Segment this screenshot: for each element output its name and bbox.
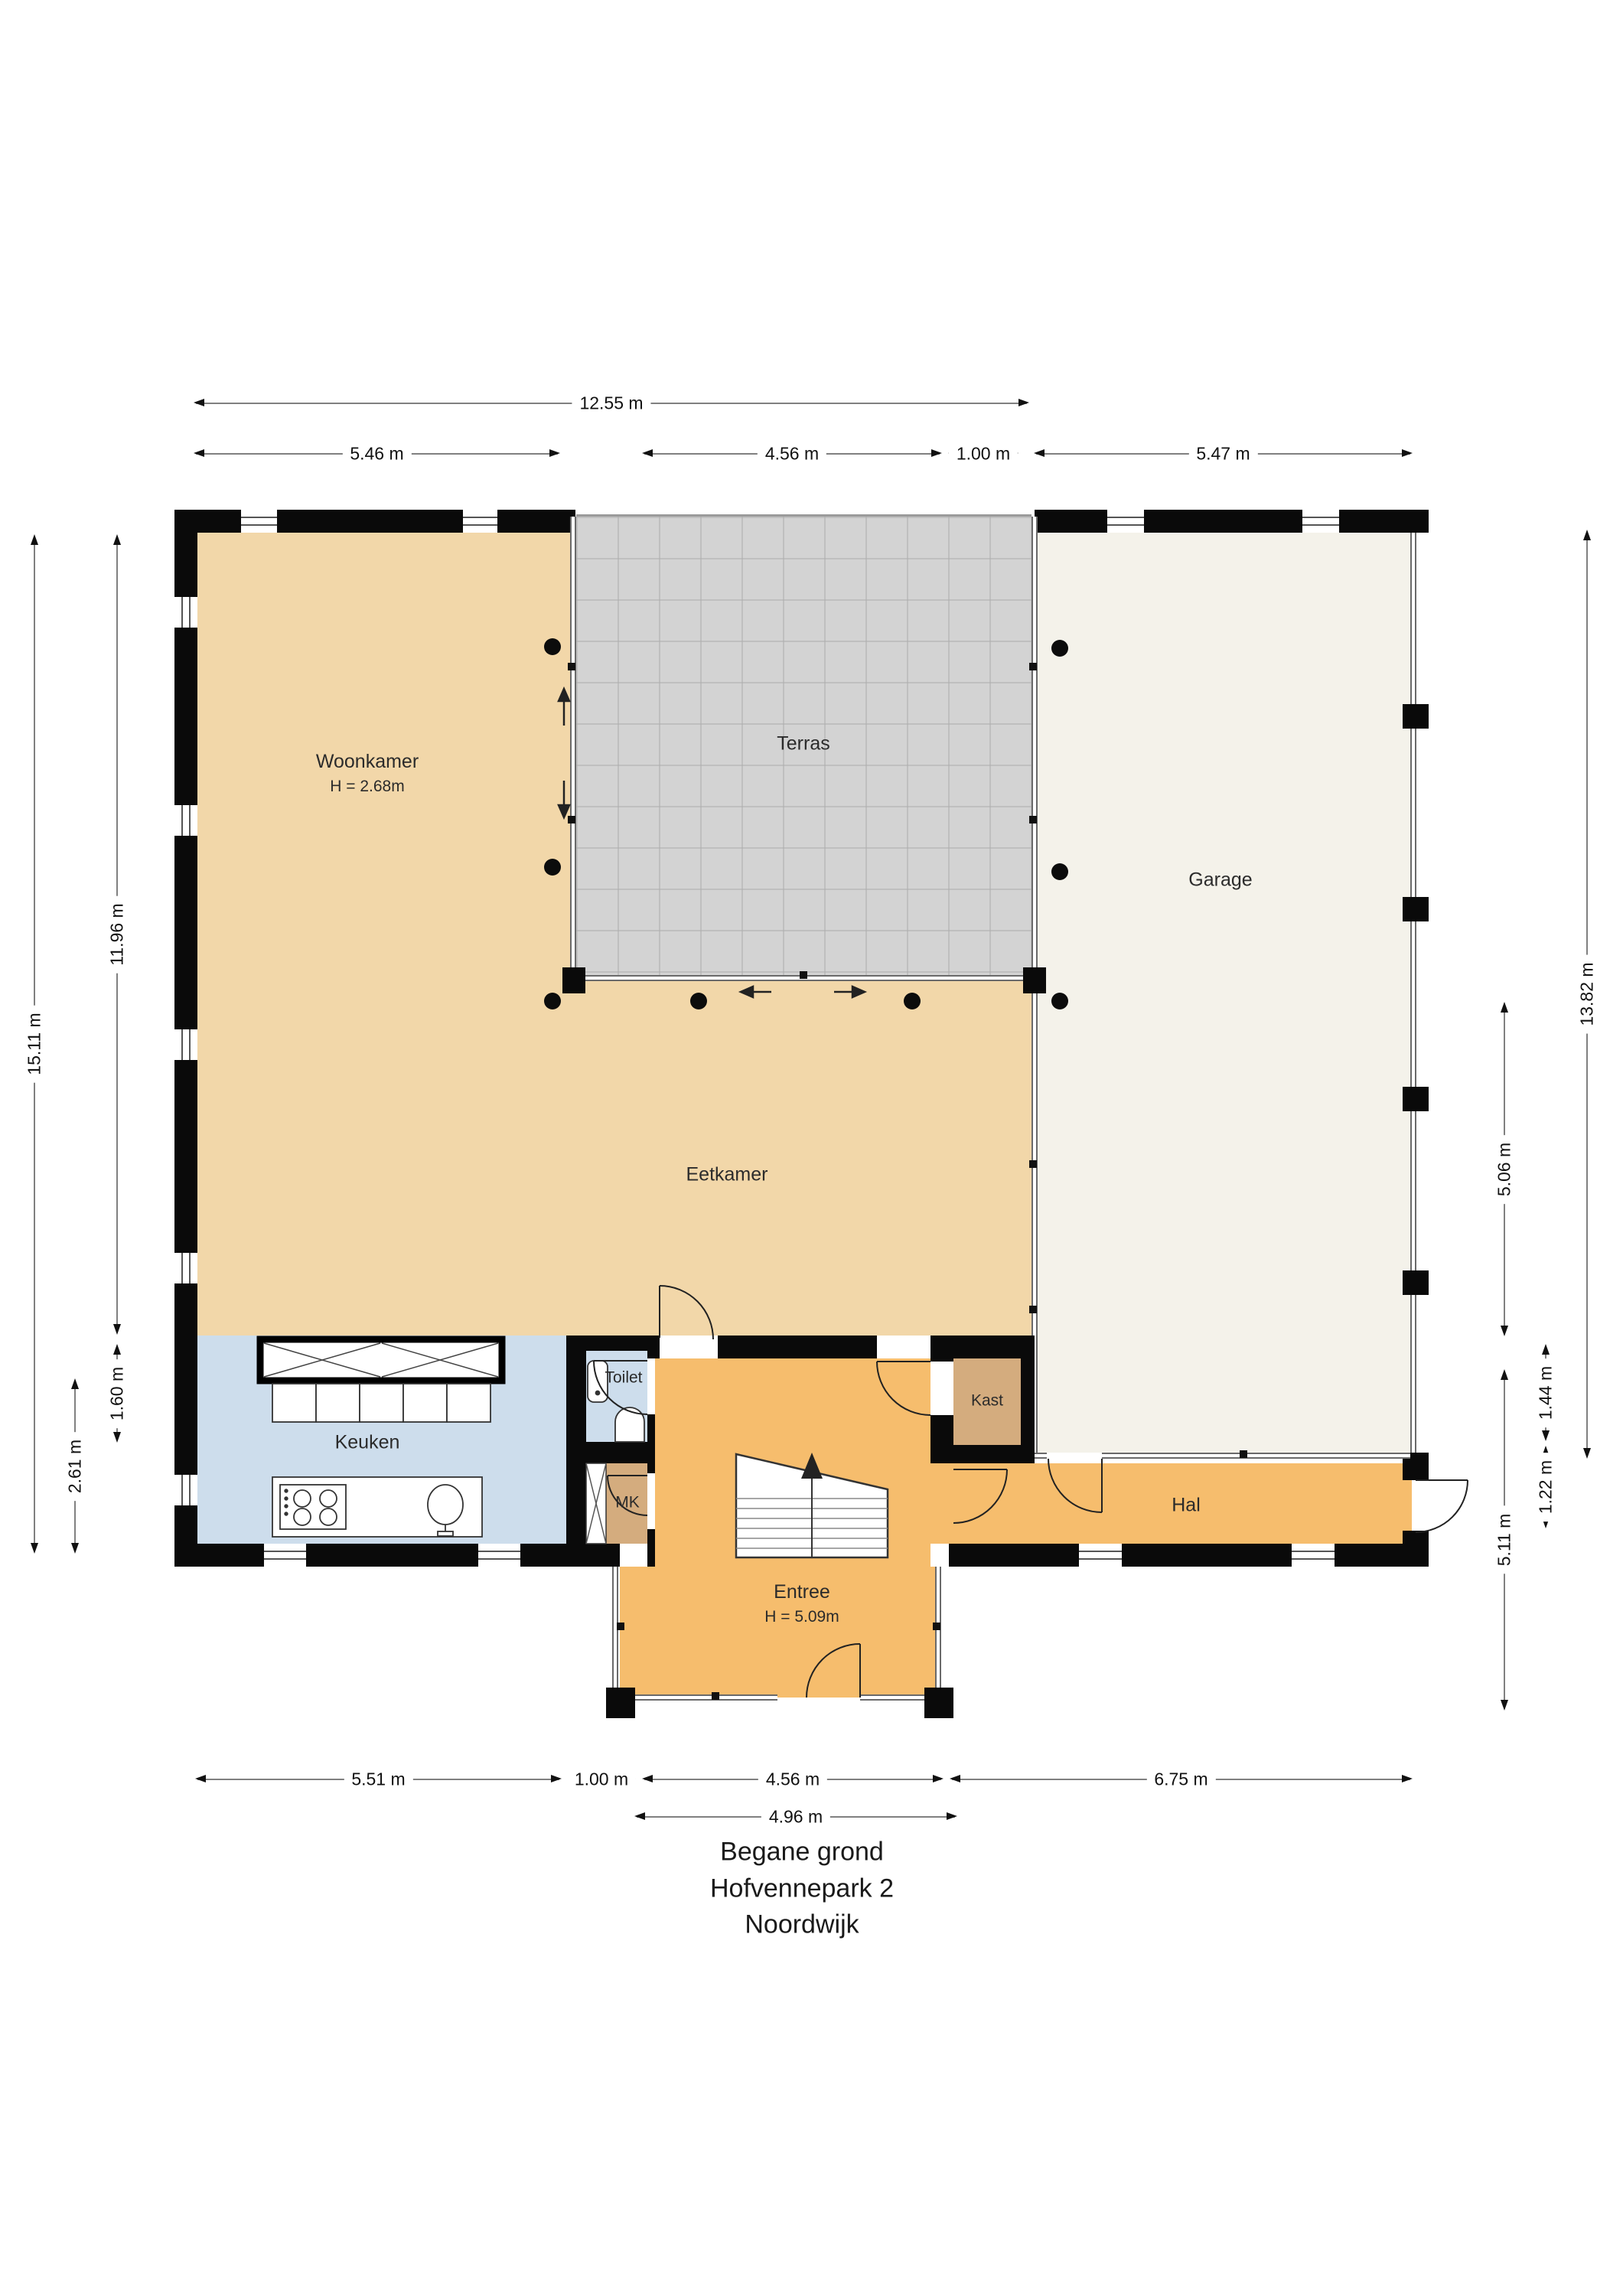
glass-wall-terras-left xyxy=(570,517,576,975)
wall-keuken-toilet xyxy=(566,1336,586,1544)
room-garage xyxy=(1038,533,1412,1453)
glass-wall-entree-front-a xyxy=(635,1694,777,1701)
wall-top-right xyxy=(1035,510,1429,533)
shaft-x xyxy=(586,1463,606,1544)
window-left-2 xyxy=(174,805,197,836)
glass-wall-hal-top-b xyxy=(1102,1453,1410,1459)
label-hal: Hal xyxy=(1172,1492,1201,1519)
wall-kast-bottom xyxy=(930,1445,1035,1463)
glass-wall-entree-front-b xyxy=(860,1694,926,1701)
window-left-4 xyxy=(174,1253,197,1283)
window-top-3 xyxy=(1107,510,1144,533)
label-woonkamer: Woonkamer H = 2.68m xyxy=(316,748,419,797)
terras-corner-post-left xyxy=(562,967,585,993)
room-eetkamer xyxy=(570,981,1031,1336)
door-hal-exterior xyxy=(1416,1480,1468,1532)
label-entree: Entree H = 5.09m xyxy=(764,1579,839,1628)
window-left-1 xyxy=(174,597,197,628)
wall-toilet-bottom xyxy=(586,1442,655,1463)
glass-wall-garage-right xyxy=(1410,533,1416,1453)
entree-corner-post-right xyxy=(924,1688,953,1718)
floor-plan: Woonkamer H = 2.68m Terras Garage Eetkam… xyxy=(0,0,1623,2296)
room-toilet xyxy=(586,1351,647,1442)
facade-pillar-2 xyxy=(1403,897,1429,921)
window-left-3 xyxy=(174,1029,197,1060)
title-floor: Begane grond xyxy=(710,1835,894,1871)
room-woonkamer xyxy=(197,533,570,1336)
room-entree xyxy=(655,1358,930,1567)
wall-toilet-top xyxy=(586,1336,655,1351)
label-kast: Kast xyxy=(971,1389,1003,1411)
facade-pillar-4 xyxy=(1403,1270,1429,1295)
window-bottom-1 xyxy=(264,1544,306,1567)
window-bottom-4 xyxy=(1292,1544,1335,1567)
window-top-1 xyxy=(241,510,277,533)
window-bottom-2 xyxy=(478,1544,520,1567)
title-address: Hofvennepark 2 xyxy=(710,1870,894,1907)
facade-pillar-3 xyxy=(1403,1087,1429,1111)
wall-bottom-right xyxy=(949,1544,1429,1567)
label-eetkamer: Eetkamer xyxy=(686,1162,768,1189)
facade-pillar-1 xyxy=(1403,704,1429,729)
label-mk: MK xyxy=(615,1491,640,1513)
label-toilet: Toilet xyxy=(605,1366,642,1388)
title-city: Noordwijk xyxy=(710,1907,894,1944)
terras-corner-post-right xyxy=(1023,967,1046,993)
window-top-2 xyxy=(463,510,497,533)
label-terras: Terras xyxy=(777,731,829,758)
wall-top-left xyxy=(174,510,575,533)
plan-title: Begane grond Hofvennepark 2 Noordwijk xyxy=(710,1835,894,1944)
window-top-4 xyxy=(1302,510,1339,533)
window-bottom-3 xyxy=(1079,1544,1122,1567)
entree-corner-post-left xyxy=(606,1688,635,1718)
label-garage: Garage xyxy=(1188,867,1252,894)
window-left-5 xyxy=(174,1475,197,1505)
wall-bottom-left xyxy=(174,1544,620,1567)
hal-corner-post-bottom xyxy=(1403,1531,1429,1544)
label-keuken: Keuken xyxy=(335,1430,400,1456)
